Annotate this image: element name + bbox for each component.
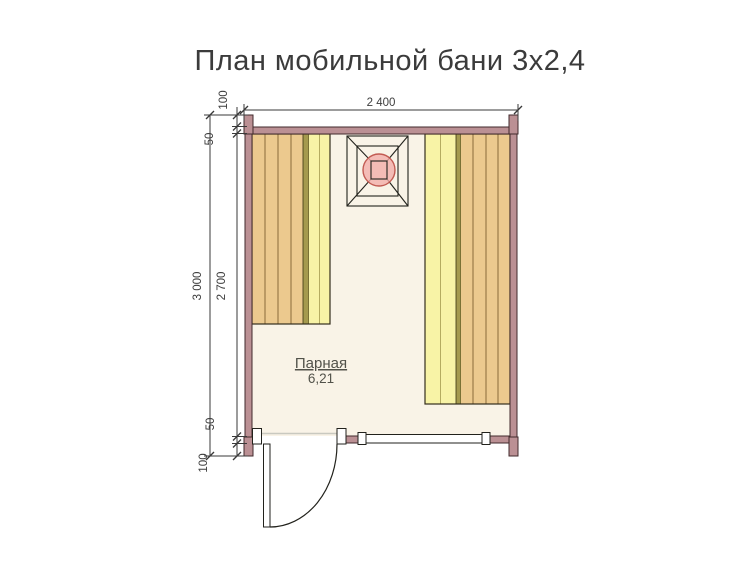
dimension-left-inner: 100 50 2 700 50 100: [198, 90, 247, 472]
window-frame: [366, 435, 482, 444]
room-name-label: Парная: [295, 355, 347, 372]
wall-stub-bottom-right: [490, 436, 510, 443]
wall-right: [510, 127, 517, 437]
window-mark-right: [482, 433, 490, 445]
door-swing-arc: [270, 444, 337, 527]
wall-top: [252, 127, 510, 134]
dim-label-width: 2 400: [367, 97, 396, 109]
wall-stub-door-right: [346, 436, 358, 443]
door-jamb-right: [337, 429, 346, 445]
dim-label-100-top: 100: [218, 90, 230, 109]
dim-label-height-total: 3 000: [192, 272, 204, 301]
corner-post-bottom-left: [244, 437, 253, 456]
floor-plan-page: План мобильной бани 3х2,4: [0, 0, 737, 567]
room-area-label: 6,21: [308, 371, 334, 386]
door: [253, 429, 347, 528]
wall-left: [245, 127, 252, 437]
stove-heater-circle: [363, 154, 395, 186]
stove: [347, 136, 408, 206]
dim-label-50-top: 50: [204, 133, 216, 146]
door-leaf: [264, 444, 271, 527]
page-title: План мобильной бани 3х2,4: [194, 45, 585, 77]
floor-plan-canvas: План мобильной бани 3х2,4: [0, 0, 737, 567]
bench-right-separator: [456, 134, 461, 404]
corner-post-top-right: [509, 115, 518, 134]
window: [358, 433, 490, 445]
window-mark-left: [358, 433, 366, 445]
bench-right: [425, 134, 510, 404]
corner-post-top-left: [244, 115, 253, 134]
dim-label-50-bottom: 50: [205, 418, 217, 431]
dim-label-height-inner: 2 700: [216, 272, 228, 301]
dim-label-100-bottom: 100: [198, 453, 210, 472]
door-jamb-left: [253, 429, 262, 445]
bench-left-separator: [303, 134, 309, 324]
corner-post-bottom-right: [509, 437, 518, 456]
bench-left: [252, 134, 330, 324]
dimension-top: 2 400: [240, 97, 522, 121]
